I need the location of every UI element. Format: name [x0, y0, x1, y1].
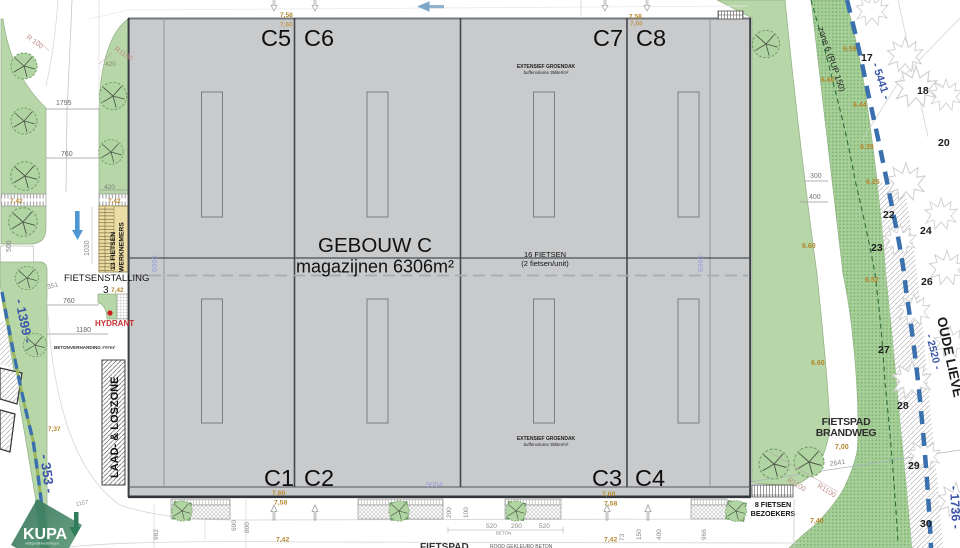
svg-text:24: 24 — [920, 225, 932, 237]
svg-text:6.52: 6.52 — [865, 277, 879, 284]
svg-text:400: 400 — [809, 194, 821, 201]
svg-text:7,60: 7,60 — [280, 22, 293, 29]
svg-text:6.25: 6.25 — [866, 179, 880, 186]
svg-text:150: 150 — [636, 529, 643, 540]
svg-text:FIETSPAD: FIETSPAD — [420, 542, 469, 548]
svg-text:17: 17 — [861, 52, 873, 64]
svg-text:13 FIETSEN: 13 FIETSEN — [110, 232, 117, 270]
svg-text:6.39: 6.39 — [860, 144, 874, 151]
svg-text:1030: 1030 — [84, 240, 91, 256]
svg-text:760: 760 — [63, 298, 75, 305]
svg-text:690: 690 — [231, 520, 238, 531]
svg-text:7,42: 7,42 — [108, 198, 121, 205]
svg-text:1180: 1180 — [76, 327, 91, 334]
svg-text:200: 200 — [446, 507, 453, 518]
svg-text:BEZOEKERS: BEZOEKERS — [751, 509, 796, 518]
svg-text:760: 760 — [61, 151, 73, 158]
svg-text:6.60: 6.60 — [821, 77, 835, 84]
svg-text:C3: C3 — [592, 465, 622, 491]
svg-text:400: 400 — [656, 529, 663, 540]
svg-text:29: 29 — [908, 460, 920, 472]
svg-text:C8: C8 — [636, 25, 666, 51]
svg-text:100: 100 — [463, 507, 470, 518]
svg-text:982: 982 — [153, 529, 160, 540]
svg-text:C4: C4 — [635, 465, 665, 491]
svg-text:7,42: 7,42 — [604, 537, 617, 544]
svg-text:1795: 1795 — [56, 100, 72, 107]
svg-text:6.60: 6.60 — [802, 243, 816, 250]
svg-text:7,37: 7,37 — [48, 426, 61, 433]
svg-text:7,40: 7,40 — [810, 518, 824, 525]
svg-text:C6: C6 — [304, 25, 334, 51]
svg-text:18: 18 — [917, 85, 929, 97]
svg-text:FIETSENSTALLING: FIETSENSTALLING — [64, 273, 149, 284]
svg-text:BRANDWEG: BRANDWEG — [816, 427, 877, 439]
svg-text:7,42: 7,42 — [10, 198, 23, 205]
svg-text:200: 200 — [511, 523, 522, 530]
svg-text:C7: C7 — [593, 25, 623, 51]
svg-text:HYDRANT: HYDRANT — [95, 319, 134, 328]
svg-text:27: 27 — [878, 344, 890, 356]
svg-text:6.44: 6.44 — [853, 102, 867, 109]
svg-text:6.59: 6.59 — [843, 46, 857, 53]
svg-text:7,60: 7,60 — [602, 491, 615, 498]
svg-text:6960: 6960 — [696, 255, 705, 272]
svg-text:22: 22 — [883, 209, 895, 221]
svg-text:LAAD- & LOSZONE: LAAD- & LOSZONE — [109, 377, 121, 478]
svg-text:C1: C1 — [264, 465, 294, 491]
svg-text:23: 23 — [871, 242, 883, 254]
svg-text:7,58: 7,58 — [274, 500, 287, 507]
svg-text:800: 800 — [244, 522, 251, 533]
svg-text:buffervolume 35liter/m²: buffervolume 35liter/m² — [524, 442, 569, 447]
svg-text:ROOD GEKLEURD BETON: ROOD GEKLEURD BETON — [490, 544, 553, 548]
svg-text:BETONVERHARDING ###m²: BETONVERHARDING ###m² — [54, 345, 116, 350]
svg-text:7,58: 7,58 — [629, 14, 642, 21]
svg-text:7,42: 7,42 — [276, 537, 289, 544]
svg-text:KUPA: KUPA — [23, 526, 68, 543]
svg-text:500: 500 — [6, 240, 13, 252]
svg-text:7,58: 7,58 — [280, 12, 293, 19]
svg-text:WERKNEMERS: WERKNEMERS — [119, 222, 126, 272]
svg-text:C2: C2 — [304, 465, 334, 491]
svg-text:966: 966 — [701, 529, 708, 540]
svg-text:7,00: 7,00 — [835, 444, 849, 451]
svg-text:30: 30 — [920, 518, 932, 530]
svg-text:9054: 9054 — [426, 480, 443, 489]
svg-text:vastgoedinvesteringen: vastgoedinvesteringen — [25, 542, 59, 546]
svg-text:BETON.: BETON. — [496, 531, 513, 536]
svg-text:7,60: 7,60 — [630, 21, 643, 28]
svg-text:C5: C5 — [261, 25, 291, 51]
svg-text:6.60: 6.60 — [811, 360, 825, 367]
svg-text:300: 300 — [810, 173, 822, 180]
svg-text:(2 fietsen/unit): (2 fietsen/unit) — [521, 259, 569, 268]
svg-text:420: 420 — [104, 184, 115, 191]
svg-text:6960: 6960 — [150, 255, 159, 272]
svg-text:7,60: 7,60 — [272, 490, 285, 497]
svg-text:20: 20 — [938, 137, 950, 149]
svg-text:520: 520 — [539, 523, 550, 530]
svg-text:28: 28 — [897, 400, 909, 412]
svg-text:GEBOUW C: GEBOUW C — [318, 234, 432, 257]
svg-text:7,42: 7,42 — [111, 287, 124, 294]
svg-text:8 FIETSEN: 8 FIETSEN — [755, 500, 791, 509]
svg-text:- 1736 -: - 1736 - — [947, 485, 960, 529]
svg-text:420: 420 — [105, 61, 116, 68]
svg-text:73: 73 — [619, 533, 626, 541]
svg-text:buffervolume 35liter/m²: buffervolume 35liter/m² — [524, 70, 569, 75]
svg-text:26: 26 — [921, 276, 933, 288]
svg-text:16 FIETSEN: 16 FIETSEN — [524, 250, 566, 259]
svg-text:magazijnen 6306m²: magazijnen 6306m² — [296, 257, 454, 277]
svg-text:520: 520 — [486, 523, 497, 530]
